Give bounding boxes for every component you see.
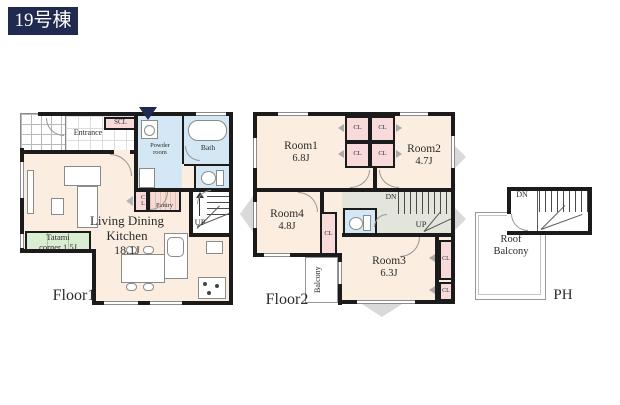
window <box>253 138 257 168</box>
closet-label: CL <box>370 124 395 131</box>
window <box>196 112 226 116</box>
ldk-label-line2: Kitchen <box>77 229 177 244</box>
closet-door-chevron <box>396 124 402 132</box>
window <box>150 301 182 305</box>
wall <box>184 164 229 166</box>
closet-label: CL <box>345 124 370 131</box>
tatami-label-line2: corner 1.5J <box>27 243 89 253</box>
window <box>104 301 138 305</box>
room2-name: Room2 <box>395 143 453 156</box>
room4-size: 4.8J <box>258 221 316 233</box>
wall <box>435 237 439 304</box>
closet-door-chevron <box>338 124 344 132</box>
roof-balcony-label: Roof Balcony <box>484 234 538 258</box>
stair-landing-line <box>537 191 538 231</box>
wall <box>134 188 233 192</box>
room3-name: Room3 <box>360 255 418 268</box>
window <box>338 262 342 284</box>
wall <box>320 192 324 212</box>
bath-label: Bath <box>195 144 221 153</box>
window <box>278 112 308 116</box>
window <box>253 202 257 228</box>
powder-room-label: Powder room <box>138 142 182 157</box>
room2-label: Room2 4.7J <box>395 143 453 168</box>
stair-treads-f2 <box>398 192 451 214</box>
room4-name: Room4 <box>258 208 316 221</box>
toilet-bowl-icon-f2 <box>349 217 363 230</box>
window <box>400 112 428 116</box>
closet-room4-label: CL <box>320 230 337 237</box>
window <box>20 234 24 248</box>
closet-door-chevron <box>126 196 133 206</box>
eave-chevron-right <box>455 208 466 230</box>
eave-chevron-left <box>240 196 253 232</box>
dining-table <box>121 254 165 283</box>
window <box>264 253 290 257</box>
tatami-label: Tatami corner 1.5J <box>27 233 89 253</box>
closet-label: CL <box>370 150 395 157</box>
wall <box>253 112 257 257</box>
floor2-label: Floor2 <box>258 291 316 309</box>
closet-label: CL <box>345 150 370 157</box>
closet-door-chevron <box>338 150 344 158</box>
room3-size: 6.3J <box>360 268 418 280</box>
side-table <box>51 198 64 215</box>
washer-drum-icon <box>144 125 155 136</box>
wall <box>182 116 184 164</box>
sofa <box>64 166 101 186</box>
linen-cabinet <box>139 168 155 188</box>
wall <box>373 168 377 192</box>
powder-room-label-line2: room <box>138 149 182 156</box>
up-label-f2: UP <box>410 220 432 230</box>
entrance-label: Entrance <box>62 128 114 137</box>
ldk-label-line1: Living Dining <box>77 214 177 229</box>
room1-size: 6.8J <box>272 153 330 165</box>
room1-name: Room1 <box>272 140 330 153</box>
ph-label: PH <box>548 287 578 304</box>
toilet-tank-icon-f2 <box>363 215 371 231</box>
bathtub-icon <box>188 120 227 141</box>
scl-label: SCL <box>104 118 137 126</box>
toilet-tank-icon-f1 <box>216 170 224 186</box>
closet-f1-label: CL <box>136 192 146 210</box>
roof-balcony-label-line2: Balcony <box>484 246 538 258</box>
tv-board <box>27 170 34 214</box>
wall <box>229 112 233 305</box>
entry-direction-arrow <box>139 107 157 120</box>
floorplan-page: 19号棟 SCL Pantry CL <box>0 0 620 405</box>
room4-label: Room4 4.8J <box>258 208 316 233</box>
floor1-label: Floor1 <box>46 287 102 305</box>
wall <box>253 188 455 192</box>
room2-size: 4.7J <box>395 156 453 168</box>
room1-label: Room1 6.8J <box>272 140 330 165</box>
burner-dot <box>207 291 211 295</box>
window <box>20 162 24 198</box>
washing-machine-icon <box>141 120 158 139</box>
room3-label: Room3 6.3J <box>360 255 418 280</box>
eave-chevron-right <box>455 146 466 168</box>
eave-chevron-down <box>362 304 402 317</box>
chair <box>126 283 137 291</box>
wall <box>189 233 233 237</box>
dn-label-ph: DN <box>512 190 532 199</box>
wall <box>20 150 114 154</box>
chair <box>143 283 154 291</box>
refrigerator <box>206 241 223 254</box>
wall <box>343 208 345 236</box>
building-badge: 19号棟 <box>8 7 78 35</box>
stove-icon <box>198 277 226 299</box>
roof-balcony-label-line1: Roof <box>484 234 538 246</box>
powder-room-label-line1: Powder <box>138 142 182 149</box>
burner-dot <box>203 282 207 286</box>
toilet-bowl-icon-f1 <box>201 171 216 185</box>
closet-door-chevron <box>429 286 435 294</box>
wall <box>343 208 377 210</box>
stair-treads-ph <box>539 191 588 212</box>
wall <box>189 190 193 237</box>
dn-label-f2: DN <box>381 193 401 202</box>
burner-dot <box>215 284 219 288</box>
ldk-label: Living Dining Kitchen 18.1J <box>77 214 177 258</box>
closet-door-chevron <box>429 254 435 262</box>
ldk-size: 18.1J <box>77 244 177 258</box>
wall <box>194 166 196 190</box>
